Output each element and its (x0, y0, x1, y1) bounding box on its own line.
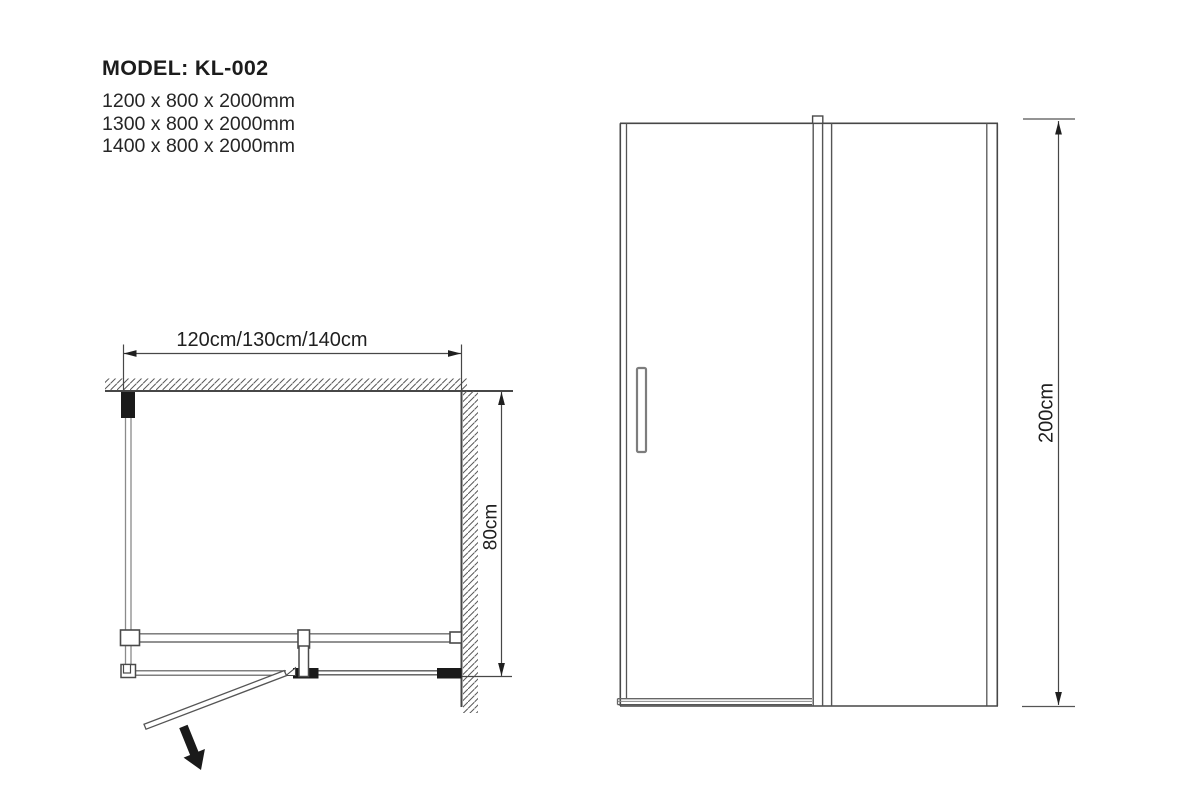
technical-drawing-canvas: MODEL: KL-002 1200 x 800 x 2000mm 1300 x… (0, 0, 1200, 800)
glass-side-panel (126, 418, 132, 664)
front-track (136, 671, 286, 675)
arrowhead-up-icon (1055, 122, 1062, 135)
elevation-frame (620, 123, 998, 706)
arrowhead-left-icon (124, 350, 137, 357)
arrowhead-down-icon (498, 663, 505, 676)
plan-view: 120cm/130cm/140cm (105, 329, 513, 774)
support-bar-left-connector (121, 630, 140, 646)
front-fixed-panel (319, 671, 438, 675)
door-pivot-wedge (286, 668, 296, 676)
front-left-bracket (121, 665, 136, 678)
support-bar-right-connector (450, 632, 462, 643)
arrowhead-down-icon (1055, 692, 1062, 705)
door-water-bar (618, 699, 813, 705)
support-bar (140, 634, 452, 642)
door-pivot-post (299, 646, 309, 677)
wall-anchor-block (437, 668, 462, 679)
width-dimension-label: 120cm/130cm/140cm (176, 329, 367, 351)
post-top-bracket (813, 116, 823, 123)
door-swing-arrow-icon (173, 722, 212, 774)
open-door-panel (144, 671, 287, 730)
top-wall-hatch (105, 379, 467, 391)
arrowhead-right-icon (448, 350, 461, 357)
drawing-svg: 120cm/130cm/140cm (0, 0, 1200, 800)
arrowhead-up-icon (498, 392, 505, 405)
depth-dimension-label: 80cm (481, 504, 502, 550)
center-post (813, 116, 832, 706)
elevation-view: 200cm (618, 116, 1076, 707)
right-wall-hatch (463, 391, 478, 713)
wall-profile-bracket (121, 392, 135, 418)
height-dimension-label: 200cm (1036, 383, 1058, 443)
door-handle (637, 368, 646, 452)
